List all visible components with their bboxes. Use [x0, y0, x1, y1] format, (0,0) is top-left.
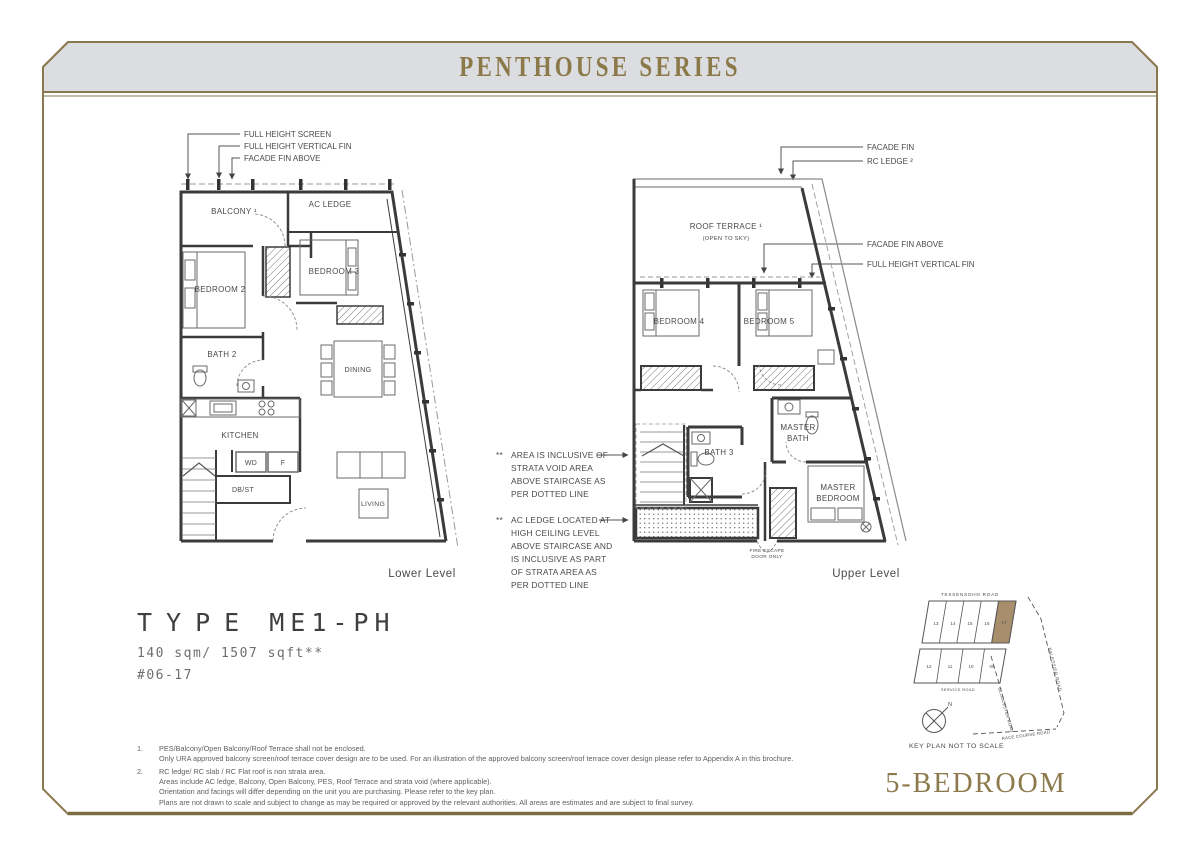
room-label-bedroom5: BEDROOM 5 — [744, 317, 795, 326]
keyplan-block-16: 16 — [985, 621, 990, 626]
annotation-line: STRATA VOID AREA — [511, 463, 593, 473]
callout-full-height-vertical-fin: FULL HEIGHT VERTICAL FIN — [244, 142, 352, 151]
lower-facade-lines — [181, 179, 458, 548]
room-label-roof-terrace: ROOF TERRACE ¹ — [690, 222, 763, 231]
unit-type-code: ME1-PH — [269, 608, 395, 637]
road-label-tessensohn: TESSENSOHN ROAD — [941, 592, 999, 597]
callout-facade-fin: FACADE FIN — [867, 143, 914, 152]
annotation-line: HIGH CEILING LEVEL — [511, 528, 600, 538]
room-label-bath3: BATH 3 — [704, 448, 733, 457]
annotation-line: OF STRATA AREA AS — [511, 567, 597, 577]
callout-full-height-screen: FULL HEIGHT SCREEN — [244, 130, 331, 139]
upper-staircase — [640, 432, 684, 502]
annotation-line: ABOVE STAIRCASE AND — [511, 541, 612, 551]
key-plan: TESSENSOHN ROAD 13 14 15 16 17 12 11 10 … — [909, 592, 1064, 750]
room-label-bedroom2: BEDROOM 2 — [195, 285, 246, 294]
unit-area: 140 sqm/ 1507 sqft** — [137, 646, 396, 661]
unit-number: #06-17 — [137, 668, 396, 683]
room-label-bedroom4: BEDROOM 4 — [654, 317, 705, 326]
room-label-open-to-sky: (OPEN TO SKY) — [703, 236, 750, 242]
annotation-line: PER DOTTED LINE — [511, 489, 589, 499]
upper-level-caption: Upper Level — [832, 568, 900, 580]
room-label-kitchen: KITCHEN — [221, 431, 258, 440]
footnote-line: PES/Balcony/Open Balcony/Roof Terrace sh… — [159, 744, 1137, 754]
keyplan-block-15: 15 — [968, 621, 973, 626]
keyplan-block-12: 12 — [927, 664, 932, 669]
road-label-service: SERVICE ROAD — [941, 687, 975, 692]
room-label-master-bath-1: MASTER — [780, 423, 815, 432]
page-title: PENTHOUSE SERIES — [143, 52, 1056, 84]
keyplan-block-10: 10 — [969, 664, 974, 669]
annotation-line: AREA IS INCLUSIVE OF — [511, 450, 608, 460]
room-label-fire-escape-1: FIRE ESCAPE — [749, 548, 784, 554]
room-label-dining: DINING — [345, 365, 372, 374]
annotation-marker: ** — [496, 450, 503, 460]
road-label-race-course: RACE COURSE ROAD — [1001, 729, 1050, 741]
footnote-number: 1. — [137, 744, 143, 753]
unit-type-label: TYPEME1-PH — [137, 608, 396, 637]
footnote-line: Only URA approved balcony screen/roof te… — [159, 754, 1137, 764]
callout-facade-fin-above-upper: FACADE FIN ABOVE — [867, 240, 943, 249]
keyplan-block-11: 11 — [948, 664, 953, 669]
lower-level-floor-plan: FULL HEIGHT SCREEN FULL HEIGHT VERTICAL … — [181, 130, 458, 580]
brochure-page: FULL HEIGHT SCREEN FULL HEIGHT VERTICAL … — [0, 0, 1200, 857]
upper-wardrobe-hatch-br4 — [641, 366, 701, 390]
road-label-left: GLOUCESTER ROAD — [997, 687, 1015, 733]
room-label-master-bath-2: BATH — [787, 434, 809, 443]
keyplan-block-13: 13 — [934, 621, 939, 626]
compass-icon — [923, 707, 949, 733]
annotation-line: AC LEDGE LOCATED AT — [511, 515, 610, 525]
callout-facade-fin-above: FACADE FIN ABOVE — [244, 154, 320, 163]
lower-wardrobe-hatch-2 — [337, 306, 383, 324]
annotation-line: PER DOTTED LINE — [511, 580, 589, 590]
annotation-line: ABOVE STAIRCASE AS — [511, 476, 606, 486]
series-label: 5-BEDROOM — [876, 768, 1076, 800]
annotation-strata-void: ** AREA IS INCLUSIVE OF STRATA VOID AREA… — [496, 450, 628, 499]
road-label-balestier: BALESTIER ROAD — [1047, 647, 1063, 692]
compass-north-label: N — [948, 702, 952, 708]
upper-callouts: FACADE FIN RC LEDGE ² FACADE FIN ABOVE F… — [764, 143, 975, 278]
upper-level-floor-plan: FACADE FIN RC LEDGE ² FACADE FIN ABOVE F… — [633, 143, 975, 580]
room-label-fire-escape-2: DOOR ONLY — [751, 554, 783, 560]
room-label-master-bedroom-1: MASTER — [820, 483, 855, 492]
room-label-balcony: BALCONY ¹ — [211, 207, 257, 216]
room-label-dbst: DB/ST — [232, 487, 255, 494]
room-label-bedroom3: BEDROOM 3 — [309, 267, 360, 276]
unit-type-word: TYPE — [137, 608, 253, 637]
room-label-f: F — [281, 460, 286, 467]
lower-level-caption: Lower Level — [388, 568, 456, 580]
annotation-ac-ledge: ** AC LEDGE LOCATED AT HIGH CEILING LEVE… — [496, 515, 628, 590]
keyplan-roads — [973, 597, 1064, 734]
ac-ledge-dotted-strip — [636, 508, 758, 538]
master-bedroom-wardrobe-hatch — [770, 488, 796, 538]
upper-wardrobe-hatch-br5 — [754, 366, 814, 390]
lower-staircase — [182, 458, 216, 535]
room-label-living: LIVING — [361, 501, 385, 508]
footnote-item: 1. PES/Balcony/Open Balcony/Roof Terrace… — [137, 744, 1137, 764]
lower-wardrobe-hatch-1 — [266, 247, 290, 297]
room-label-wd: WD — [245, 460, 257, 467]
room-label-ac-ledge: AC LEDGE — [309, 200, 352, 209]
callout-rc-ledge: RC LEDGE ² — [867, 157, 913, 166]
lower-walls — [181, 192, 446, 541]
room-label-bath2: BATH 2 — [207, 350, 236, 359]
callout-full-height-vertical-fin-upper: FULL HEIGHT VERTICAL FIN — [867, 260, 975, 269]
floor-plan-drawing: FULL HEIGHT SCREEN FULL HEIGHT VERTICAL … — [0, 0, 1200, 857]
room-label-master-bedroom-2: BEDROOM — [816, 494, 859, 503]
footnote-number: 2. — [137, 767, 143, 776]
page-frame — [43, 42, 1157, 814]
annotation-line: IS INCLUSIVE AS PART — [511, 554, 606, 564]
unit-type-block: TYPEME1-PH 140 sqm/ 1507 sqft** #06-17 — [137, 608, 396, 683]
strata-void-dashed-box — [636, 424, 686, 508]
lower-callouts: FULL HEIGHT SCREEN FULL HEIGHT VERTICAL … — [188, 130, 352, 179]
keyplan-block-17: 17 — [1002, 620, 1007, 625]
annotation-marker: ** — [496, 515, 503, 525]
keyplan-block-14: 14 — [951, 621, 956, 626]
